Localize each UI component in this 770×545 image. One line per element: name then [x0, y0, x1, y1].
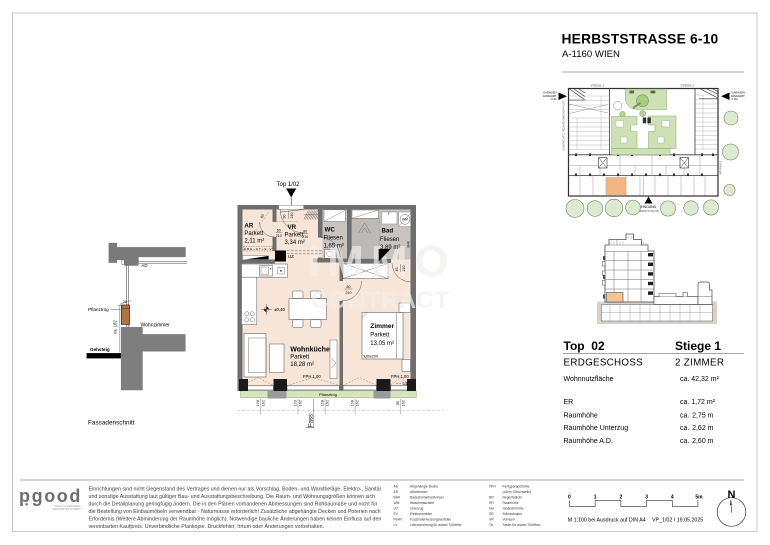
svg-text:Fliesen: Fliesen: [324, 236, 343, 242]
svg-text:ARCHITEKTEN ZT-GMBH: ARCHITEKTEN ZT-GMBH: [52, 508, 81, 511]
svg-text:162: 162: [356, 400, 360, 406]
svg-text:18,28 m²: 18,28 m²: [290, 362, 314, 368]
svg-text:Parkett: Parkett: [244, 231, 263, 237]
svg-text:103: 103: [293, 400, 297, 406]
svg-text:HERBSTSTRASSE 6-10: HERBSTSTRASSE 6-10: [562, 32, 719, 47]
svg-text:1: 1: [594, 494, 597, 500]
svg-text:Top 1/02: Top 1/02: [277, 182, 301, 188]
svg-text:Leerverrohrung für autom.Türöf: Leerverrohrung für autom.Türöffner: [410, 523, 463, 527]
svg-text:Regenfallrohr: Regenfallrohr: [503, 496, 524, 500]
svg-text:STIEGE 2: STIEGE 2: [681, 84, 695, 88]
svg-text:Wohnküche: Wohnküche: [290, 346, 330, 353]
svg-text:WC: WC: [325, 226, 336, 233]
svg-text:4: 4: [671, 494, 674, 500]
svg-text:FPH: FPH: [489, 485, 496, 489]
svg-text:210: 210: [402, 266, 406, 272]
svg-text:A-1160 WIEN: A-1160 WIEN: [562, 49, 620, 60]
svg-text:Waschmaschine: Waschmaschine: [410, 501, 434, 505]
svg-text:Pflanztrog: Pflanztrog: [88, 307, 109, 312]
svg-text:Taster für autom.Türöffner: Taster für autom.Türöffner: [503, 523, 542, 527]
svg-text:Pflanztrog: Pflanztrog: [319, 392, 337, 397]
svg-text:Raumhöhe A.D.: Raumhöhe A.D.: [564, 438, 613, 445]
svg-text:2,62 m: 2,62 m: [692, 425, 714, 432]
svg-text:ca.: ca.: [680, 399, 689, 406]
svg-text:VP_1/02 I 19.05.2025: VP_1/02 I 19.05.2025: [652, 518, 703, 524]
svg-text:Fass: Fass: [309, 414, 315, 427]
svg-text:durch die Detailplanung gering: durch die Detailplanung geringfügig ände…: [89, 502, 378, 508]
svg-text:FBHV: FBHV: [394, 518, 404, 522]
svg-text:vereinbarten Kaufpreis. Unverb: vereinbarten Kaufpreis. Unverbindliche P…: [89, 523, 325, 530]
svg-text:Abgehängte Decke: Abgehängte Decke: [410, 485, 438, 489]
svg-text:Parkett: Parkett: [285, 233, 304, 239]
svg-text:ca. 42,32 m²: ca. 42,32 m²: [680, 376, 720, 383]
svg-text:RR: RR: [489, 496, 494, 500]
svg-text:ERDGESCHOSS: ERDGESCHOSS: [564, 358, 644, 369]
svg-text:210: 210: [276, 234, 282, 238]
svg-text:180x200: 180x200: [364, 355, 379, 359]
svg-text:3,34 m²: 3,34 m²: [285, 240, 305, 246]
svg-text:3,89 m²: 3,89 m²: [380, 245, 400, 251]
svg-text:2.UG: 2.UG: [732, 97, 738, 101]
svg-text:AD: AD: [141, 263, 147, 268]
svg-text:ER: ER: [564, 399, 574, 406]
svg-text:AD: AD: [394, 485, 399, 489]
svg-text:Vorraum: Vorraum: [503, 518, 516, 522]
svg-text:Gehsteig: Gehsteig: [90, 347, 110, 352]
svg-text:46: 46: [395, 268, 399, 272]
svg-text:VR: VR: [288, 224, 297, 231]
svg-text:2,75 m: 2,75 m: [692, 412, 714, 419]
svg-text:108: 108: [320, 400, 324, 406]
svg-text:M 1:100 bei Ausdruck auf DIN A: M 1:100 bei Ausdruck auf DIN A4: [568, 518, 646, 524]
svg-text:Fliesen: Fliesen: [380, 237, 399, 243]
svg-text:108: 108: [256, 400, 260, 406]
svg-text:Fussbodenheizungsverteiler: Fussbodenheizungsverteiler: [410, 518, 452, 522]
svg-text:80: 80: [303, 230, 307, 234]
svg-text:Fassadenschnitt: Fassadenschnitt: [88, 420, 135, 427]
svg-text:Raumhöhe Unterzug: Raumhöhe Unterzug: [564, 425, 629, 432]
svg-text:GH: GH: [489, 507, 495, 511]
svg-text:1,65 m²: 1,65 m²: [324, 243, 344, 249]
svg-text:Zimmer: Zimmer: [370, 323, 394, 330]
svg-text:Erfordernis (Weitere Abminderu: Erfordernis (Weitere Abminderung der Rau…: [89, 516, 382, 523]
svg-text:UZ: UZ: [394, 507, 398, 511]
svg-text:FPH 1,00: FPH 1,00: [391, 374, 409, 379]
svg-text:WM: WM: [402, 218, 408, 222]
svg-text:Abstellraum: Abstellraum: [410, 490, 428, 494]
svg-text:Fertigparapethöhe: Fertigparapethöhe: [503, 485, 530, 489]
svg-text:90: 90: [283, 215, 287, 219]
svg-text:Parkett: Parkett: [370, 332, 389, 338]
svg-text:80: 80: [347, 285, 351, 289]
svg-text:Top 02: Top 02: [564, 339, 605, 353]
svg-text:(±3cm Türschwelle): (±3cm Türschwelle): [503, 490, 532, 494]
svg-text:und sonstige Ausstattung laut: und sonstige Ausstattung laut gültiger B…: [89, 494, 375, 500]
svg-text:RH: RH: [489, 501, 494, 505]
svg-text:AR: AR: [244, 223, 253, 230]
svg-text:EINGANG: EINGANG: [641, 205, 657, 209]
svg-text:Einrichtungen sind nicht Gegen: Einrichtungen sind nicht Gegenstand des …: [89, 487, 382, 493]
svg-text:ca.: ca.: [680, 425, 689, 432]
svg-text:BHK: BHK: [406, 240, 410, 247]
svg-text:Geländerhöhe: Geländerhöhe: [503, 507, 524, 511]
svg-text:162: 162: [401, 400, 405, 406]
svg-text:3: 3: [645, 494, 648, 500]
svg-text:60: 60: [277, 229, 281, 233]
svg-text:210: 210: [346, 291, 352, 295]
svg-text:Wohnnutzfläche: Wohnnutzfläche: [564, 376, 614, 383]
svg-text:FPH 1,00: FPH 1,00: [303, 374, 321, 379]
svg-text:108: 108: [350, 400, 354, 406]
svg-text:85: 85: [396, 401, 400, 405]
svg-text:162: 162: [299, 400, 303, 406]
svg-text:pgood: pgood: [19, 486, 82, 506]
svg-text:±0,40: ±0,40: [274, 307, 286, 312]
svg-text:Schrankraum: Schrankraum: [503, 512, 523, 516]
svg-text:Bad: Bad: [382, 228, 394, 235]
svg-text:LIEBKNECHTG. RICHARD-WAGNER-PL: LIEBKNECHTG. RICHARD-WAGNER-PLATZ: [563, 100, 566, 151]
svg-text:HIPPGASSE: HIPPGASSE: [720, 160, 723, 175]
svg-text:0: 0: [568, 494, 571, 500]
svg-text:5m: 5m: [695, 494, 703, 500]
svg-text:BHK: BHK: [394, 496, 402, 500]
svg-text:SR: SR: [489, 512, 494, 516]
svg-text:Parkett: Parkett: [290, 354, 309, 360]
svg-text:210: 210: [302, 235, 308, 239]
svg-text:ca.: ca.: [680, 438, 689, 445]
svg-text:2,60 m: 2,60 m: [692, 438, 714, 445]
svg-text:EBH+HT+E-V: EBH+HT+E-V: [244, 247, 272, 251]
svg-text:162: 162: [261, 400, 265, 406]
svg-text:CONTRACT: CONTRACT: [311, 287, 450, 314]
svg-text:ca. 182: ca. 182: [112, 320, 117, 334]
svg-text:die Bestellung von Einbaumöbel: die Bestellung von Einbaumöbeln verwendb…: [89, 509, 381, 515]
svg-text:WM: WM: [394, 501, 400, 505]
svg-text:Badezimmerheizkörper: Badezimmerheizkörper: [410, 496, 445, 500]
svg-text:13,05 m²: 13,05 m²: [370, 341, 394, 347]
svg-text:Stiege 1: Stiege 1: [675, 339, 721, 353]
svg-text:N: N: [728, 489, 736, 501]
svg-text:UZ: UZ: [403, 381, 409, 386]
svg-text:STIEGE 1: STIEGE 1: [591, 84, 605, 88]
svg-text:2: 2: [620, 494, 623, 500]
svg-text:VR: VR: [489, 518, 494, 522]
svg-text:UZ: UZ: [288, 254, 294, 259]
svg-text:210: 210: [290, 213, 294, 219]
svg-text:1.UG: 1.UG: [550, 97, 556, 101]
svg-text:1,72 m²: 1,72 m²: [691, 399, 715, 406]
svg-text:2 ZIMMER: 2 ZIMMER: [675, 358, 724, 369]
svg-text:ca.: ca.: [680, 412, 689, 419]
svg-text:Raumhöhe: Raumhöhe: [503, 501, 519, 505]
svg-text:Raumhöhe: Raumhöhe: [564, 412, 598, 419]
svg-text:162: 162: [326, 400, 330, 406]
svg-text:Wohnzimmer: Wohnzimmer: [141, 323, 171, 329]
svg-text:AR: AR: [394, 490, 399, 494]
svg-text:HERBSTSTRASSE: HERBSTSTRASSE: [638, 210, 659, 213]
svg-text:Unterzug: Unterzug: [410, 507, 424, 511]
svg-text:Elektroverteiler: Elektroverteiler: [410, 512, 433, 516]
svg-text:2,11 m²: 2,11 m²: [244, 239, 264, 245]
